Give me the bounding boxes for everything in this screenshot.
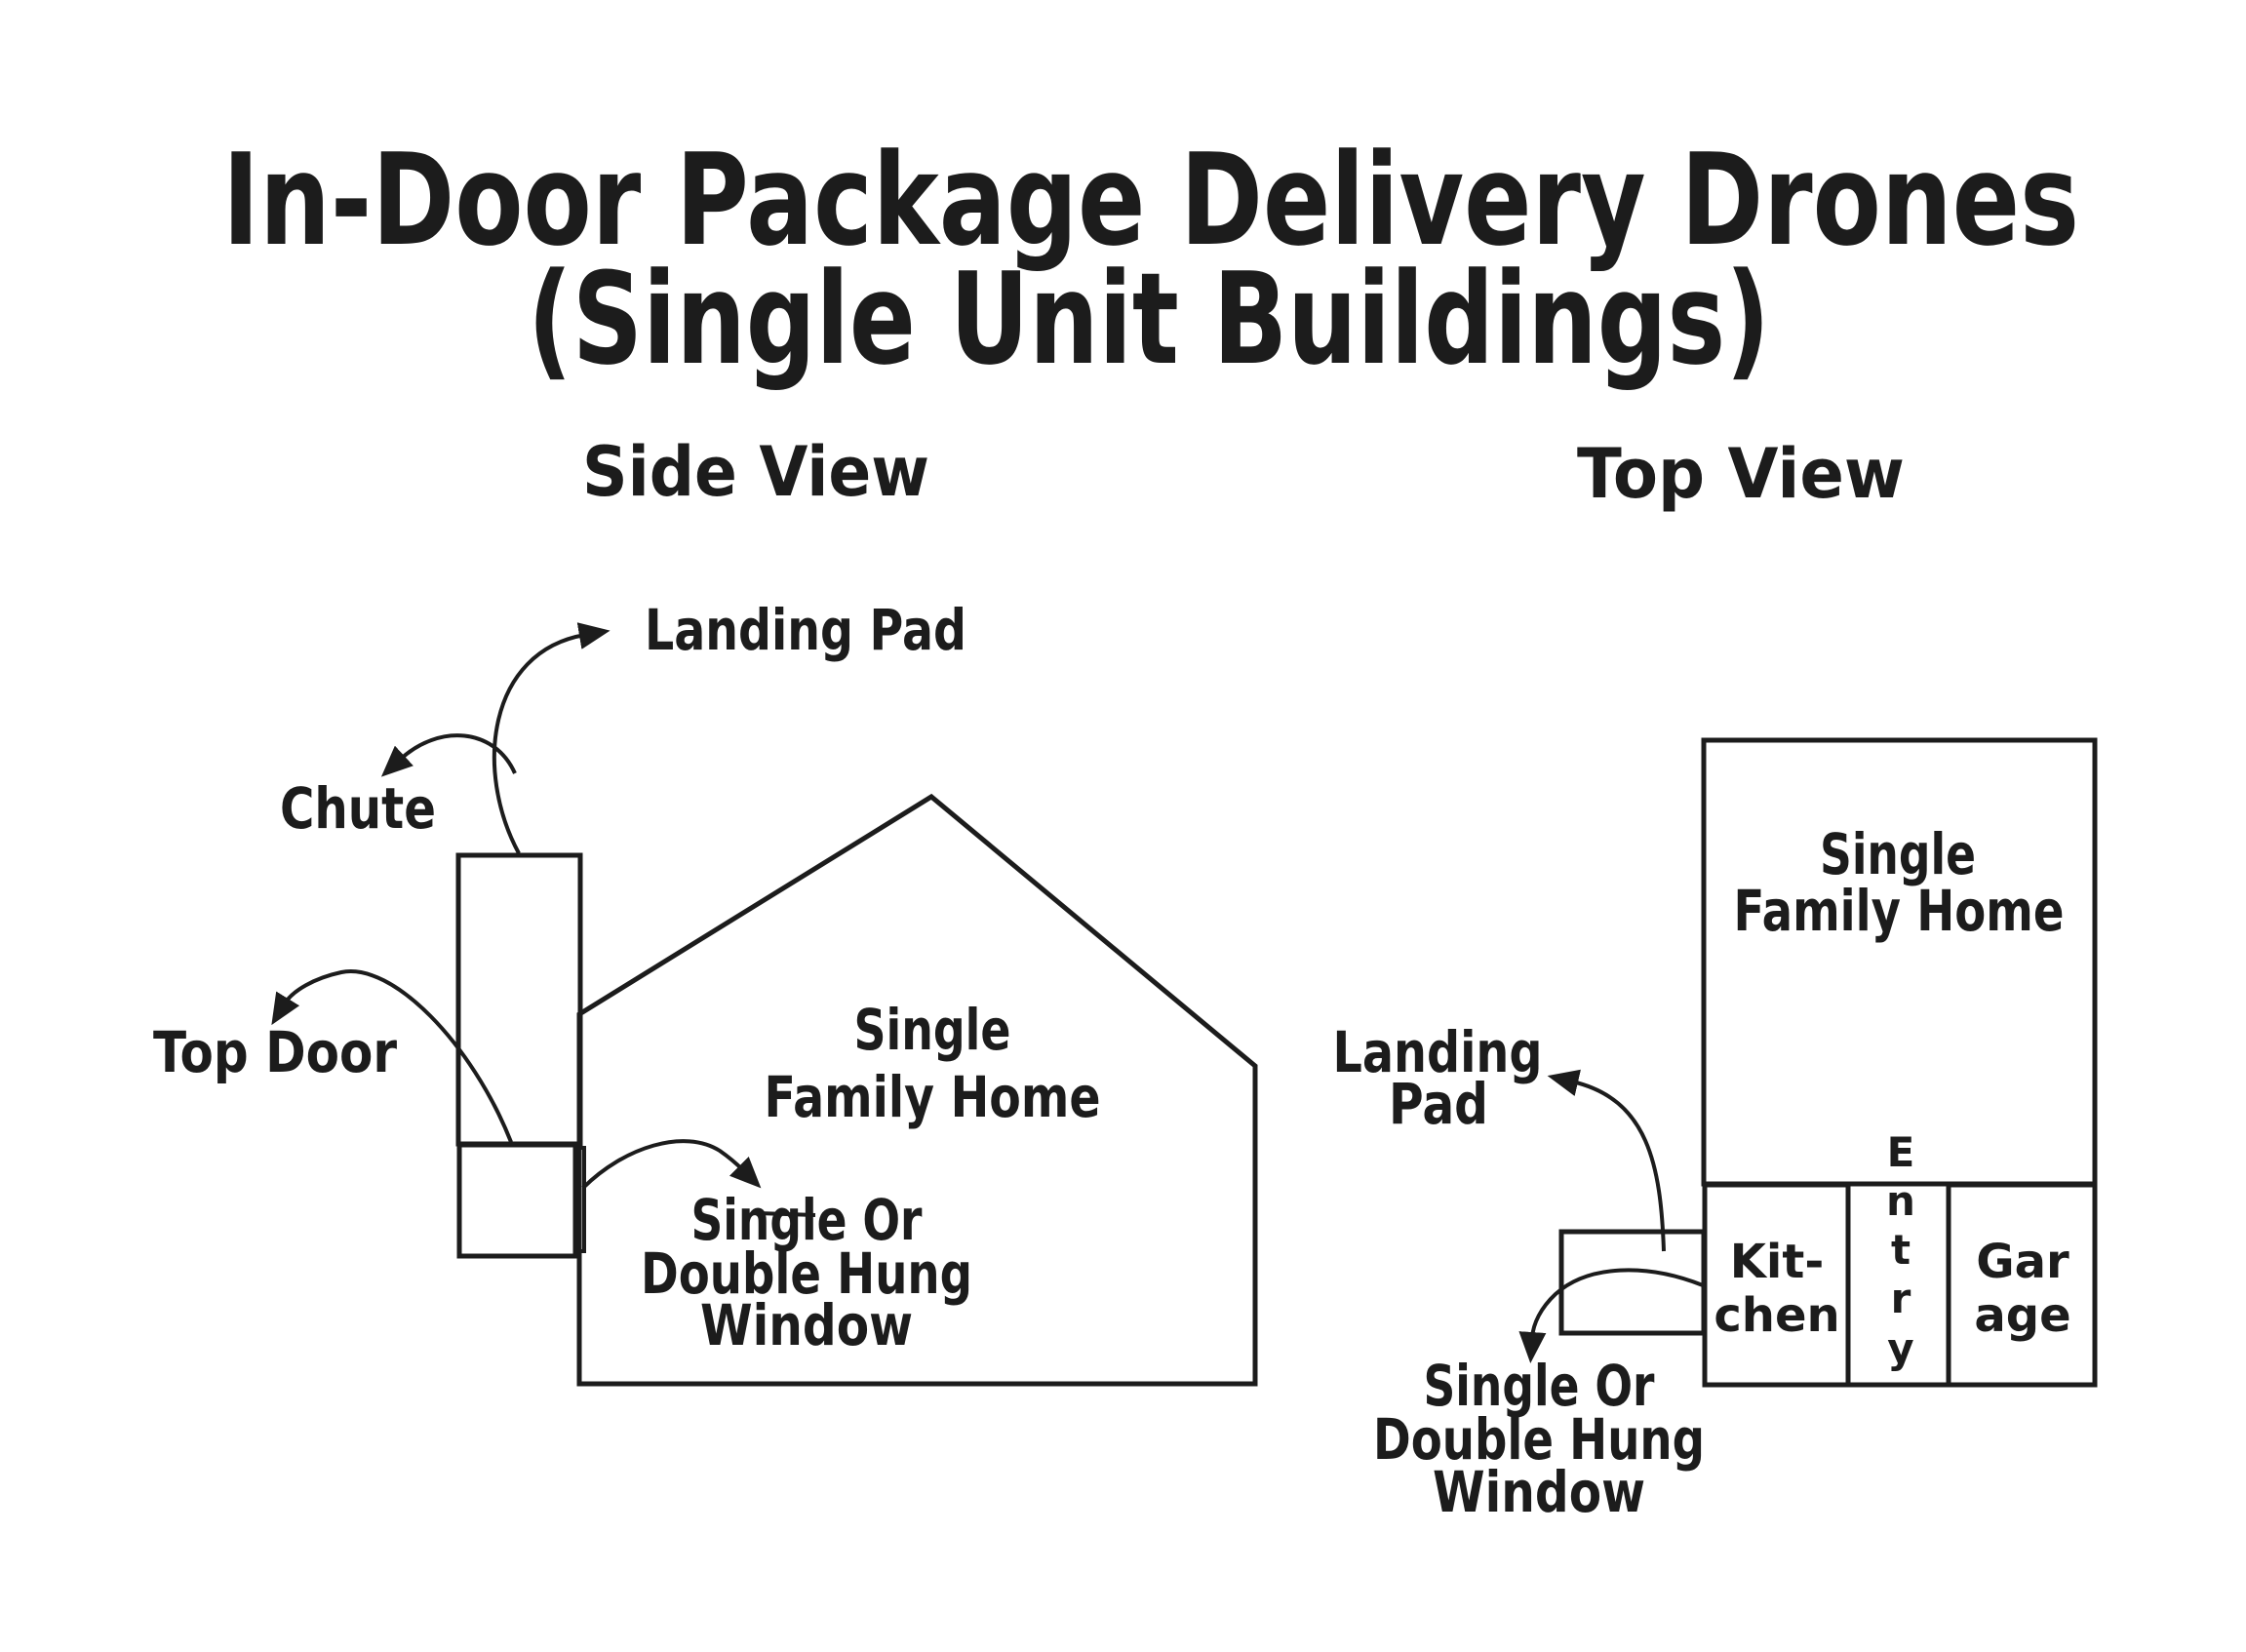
- entry-letter-5: y: [1887, 1324, 1913, 1372]
- entry-label: E n t r y: [1886, 1128, 1915, 1372]
- side-window-arrow: [583, 1141, 743, 1188]
- page-title-line2: (Single Unit Buildings): [528, 245, 1770, 393]
- top-view: Top View Single Family Home Landing Pad …: [1333, 434, 2096, 1525]
- side-top-door-label: Top Door: [153, 1019, 397, 1085]
- side-landing-pad-arrow: [494, 635, 585, 853]
- top-view-heading: Top View: [1577, 434, 1905, 514]
- side-chute-arrow: [400, 735, 515, 773]
- entry-letter-3: t: [1891, 1226, 1911, 1274]
- entry-letter-4: r: [1891, 1275, 1911, 1322]
- side-home-label-line1: Single: [854, 997, 1011, 1063]
- side-view-heading: Side View: [582, 432, 929, 512]
- side-window-label-line3: Window: [700, 1292, 913, 1358]
- top-window-arrow: [1532, 1270, 1703, 1338]
- top-landing-pad-label-line2: Pad: [1389, 1071, 1488, 1137]
- kitchen-label-line2: chen: [1714, 1288, 1839, 1343]
- drone-delivery-diagram: In-Door Package Delivery Drones (Single …: [0, 0, 2246, 1652]
- side-landing-pad-label: Landing Pad: [645, 597, 966, 663]
- entry-letter-2: n: [1886, 1177, 1915, 1225]
- top-house-rect: [1704, 740, 2095, 1184]
- top-landing-pad-arrow: [1572, 1082, 1664, 1251]
- side-top-door-box: [459, 1145, 575, 1256]
- side-home-label-line2: Family Home: [765, 1064, 1101, 1130]
- side-chute-label: Chute: [280, 775, 436, 842]
- top-home-label-line2: Family Home: [1734, 878, 2065, 944]
- diagram-page: In-Door Package Delivery Drones (Single …: [0, 0, 2246, 1652]
- side-chute-rect: [458, 855, 580, 1144]
- kitchen-label-line1: Kit-: [1730, 1235, 1825, 1289]
- garage-label-line2: age: [1974, 1288, 2070, 1343]
- entry-letter-1: E: [1887, 1128, 1915, 1176]
- title-block: In-Door Package Delivery Drones (Single …: [222, 126, 2079, 393]
- side-view: Side View Landing Pad Chute Top Door Sin…: [153, 432, 1255, 1384]
- top-window-label-line3: Window: [1433, 1459, 1645, 1525]
- garage-label-line1: Gar: [1976, 1235, 2069, 1289]
- top-landing-pad-rect: [1561, 1232, 1704, 1333]
